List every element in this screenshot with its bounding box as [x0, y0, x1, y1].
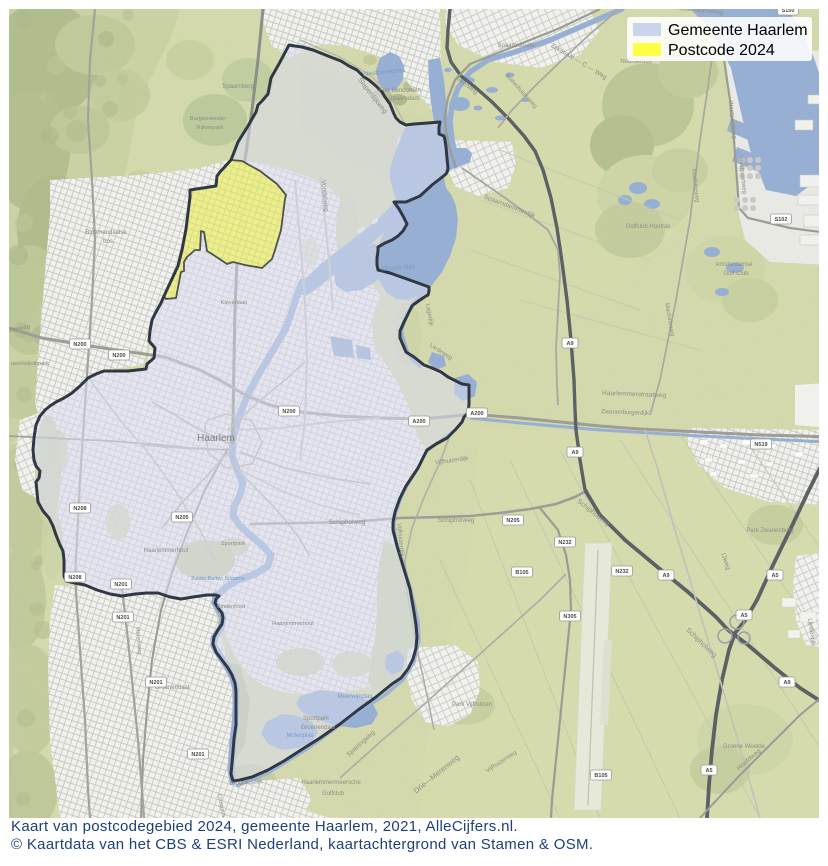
svg-text:A9: A9	[783, 680, 790, 686]
svg-text:Eindenhout: Eindenhout	[217, 604, 246, 610]
svg-text:Spaarnberg: Spaarnberg	[222, 84, 253, 90]
svg-text:A5: A5	[771, 573, 778, 579]
svg-text:N232: N232	[558, 540, 571, 546]
svg-text:N201: N201	[114, 582, 127, 588]
svg-text:Schipholweg: Schipholweg	[438, 517, 475, 524]
svg-text:Meerwijkplas: Meerwijkplas	[338, 694, 373, 700]
svg-text:Groene Weelde: Groene Weelde	[723, 744, 766, 750]
svg-text:N200: N200	[282, 409, 295, 415]
svg-text:N200: N200	[112, 353, 125, 359]
svg-text:Kleverlaan: Kleverlaan	[221, 300, 247, 306]
svg-text:bos: bos	[103, 239, 113, 245]
svg-text:Park Zwanenburg: Park Zwanenburg	[746, 528, 793, 534]
svg-text:Spaarndam: Spaarndam	[388, 96, 419, 102]
svg-text:Burgemeester: Burgemeester	[190, 116, 226, 122]
svg-text:N201: N201	[191, 752, 204, 758]
svg-text:Spaarnwoude: Spaarnwoude	[497, 43, 535, 49]
svg-text:A200: A200	[412, 419, 425, 425]
svg-text:Golf Club: Golf Club	[723, 271, 749, 277]
svg-text:Golfclub: Golfclub	[322, 791, 345, 797]
svg-text:Bloemendaalse: Bloemendaalse	[85, 230, 127, 236]
svg-text:A9: A9	[662, 573, 669, 579]
svg-text:A9: A9	[571, 450, 578, 456]
svg-text:N205: N205	[506, 518, 519, 524]
svg-text:Golfclub Houtrak: Golfclub Houtrak	[626, 224, 672, 230]
svg-text:N305: N305	[563, 614, 576, 620]
svg-text:Sportpark: Sportpark	[221, 541, 245, 547]
svg-text:Haarlemmermeersche: Haarlemmermeersche	[301, 780, 361, 786]
svg-text:N208: N208	[68, 575, 81, 581]
svg-text:A200: A200	[470, 411, 483, 417]
svg-text:Haarlem: Haarlem	[197, 433, 235, 444]
svg-text:A9: A9	[566, 341, 573, 347]
svg-text:B105: B105	[594, 773, 607, 779]
svg-text:Rijkenpark: Rijkenpark	[196, 125, 223, 131]
svg-text:Gemeente Haarlem: Gemeente Haarlem	[668, 22, 808, 39]
svg-text:A5: A5	[705, 768, 712, 774]
svg-text:Park Vijfhuizen: Park Vijfhuizen	[452, 702, 492, 708]
svg-text:N200: N200	[73, 342, 86, 348]
svg-text:N232: N232	[615, 569, 628, 575]
svg-text:N201: N201	[116, 615, 129, 621]
svg-text:Fort Benoorden: Fort Benoorden	[379, 88, 421, 94]
svg-text:S102: S102	[775, 217, 788, 223]
svg-text:A5: A5	[740, 613, 747, 619]
svg-text:Haarlemmerhout: Haarlemmerhout	[144, 548, 189, 554]
svg-text:N208: N208	[73, 506, 86, 512]
svg-text:Haarlemmerhout: Haarlemmerhout	[272, 621, 314, 627]
svg-text:Zuider Buiten Spaarne: Zuider Buiten Spaarne	[191, 576, 245, 582]
svg-text:Molenplas: Molenplas	[286, 733, 313, 739]
svg-text:Postcode 2024: Postcode 2024	[668, 42, 775, 59]
svg-text:S150: S150	[782, 8, 795, 14]
svg-text:uwenskolkpark: uwenskolkpark	[11, 361, 49, 367]
svg-text:Amsterdamse: Amsterdamse	[715, 262, 753, 268]
svg-text:Sportpark: Sportpark	[303, 716, 330, 722]
svg-text:Groenendaal: Groenendaal	[301, 725, 336, 731]
svg-text:B105: B105	[515, 570, 528, 576]
svg-text:N205: N205	[175, 515, 188, 521]
svg-text:Schipholweg: Schipholweg	[329, 519, 366, 526]
svg-text:N201: N201	[149, 680, 162, 686]
svg-text:N519: N519	[754, 442, 767, 448]
